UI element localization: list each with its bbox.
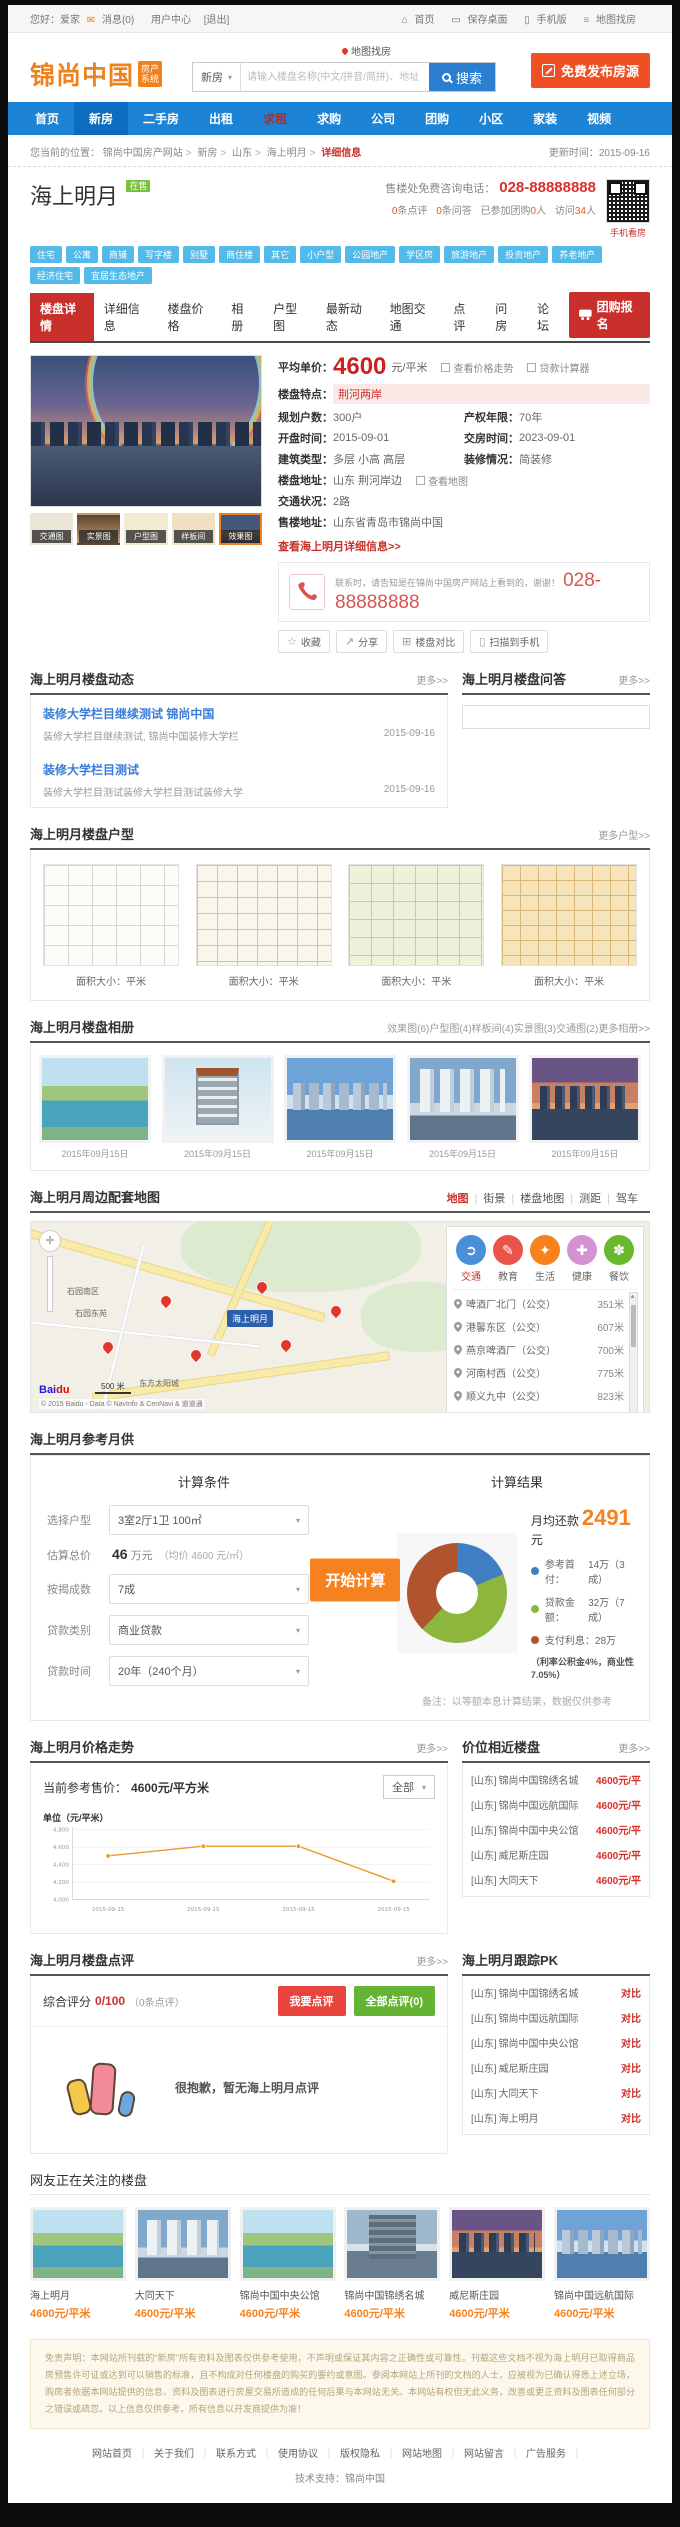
reviews-more-link[interactable]: 更多>> [416, 1953, 448, 1968]
location-icon [416, 476, 425, 485]
poi-category[interactable]: ➲ 交通 [456, 1235, 486, 1283]
compare-link[interactable]: 对比 [621, 2110, 641, 2125]
tag-pill[interactable]: 经济住宅 [30, 267, 80, 284]
compare-link[interactable]: 对比 [621, 2010, 641, 2025]
phone-icon: ▯ [524, 15, 530, 26]
pk-list: [山东] 锦尚中国锦绣名城 对比 [山东] 锦尚中国远航国际 对比 [山东] [462, 1976, 650, 2135]
legend-dot [531, 1567, 539, 1575]
album-links: 效果图(6)户型图(4)样板间(4)实景图(3)交通图(2) 更多相册>> [387, 1020, 650, 1035]
trend-filter-select[interactable]: 全部▾ [383, 1775, 435, 1799]
property-card[interactable]: 锦尚中国远航国际4600元/平米 [554, 2207, 650, 2321]
qa-input[interactable] [462, 705, 650, 729]
loan-type-select[interactable]: 商业贷款▾ [109, 1615, 309, 1645]
scan-to-phone-button[interactable]: ▯扫描到手机 [470, 630, 548, 653]
nav-item-home[interactable]: 首页 [20, 102, 74, 135]
floorplan-image [348, 864, 484, 966]
footer-link[interactable]: 版权隐私 [340, 2449, 380, 2460]
floorplan-item[interactable]: 面积大小：平米 [501, 864, 637, 988]
tab-detail[interactable]: 楼盘详情 [30, 293, 94, 341]
nav-item-newhouse[interactable]: 新房 [74, 102, 128, 135]
open-date: 2015-09-01 [333, 432, 389, 444]
baidu-logo: Baidu [39, 1384, 70, 1396]
tab-forum[interactable]: 论坛 [527, 293, 569, 341]
breadcrumb-site[interactable]: 锦尚中国房产网站 [103, 148, 183, 159]
empty-state-illustration [67, 2055, 145, 2119]
support-link[interactable]: 锦尚中国 [345, 2474, 385, 2485]
mobile-version-link[interactable]: ▯ 手机版 [524, 15, 570, 26]
qa-more-link[interactable]: 更多>> [618, 672, 650, 687]
map-pin-icon [159, 1294, 173, 1308]
album-photo[interactable]: 2015年09月15日 [39, 1055, 151, 1160]
nav-item-video[interactable]: 视频 [572, 102, 626, 135]
breadcrumb-category[interactable]: 新房 [197, 148, 217, 159]
calculate-button[interactable]: 开始计算 [310, 1559, 400, 1602]
album-category-link[interactable]: 户型图(4) [429, 1020, 471, 1035]
floorplan-image [501, 864, 637, 966]
save-desktop-link[interactable]: ▭ 保存桌面 [451, 15, 511, 26]
card-image [30, 2207, 126, 2281]
nearby-header: 价位相近楼盘 更多>> [462, 1737, 650, 1763]
nav-item-seek-rent[interactable]: 求租 [248, 102, 302, 135]
tenure-value: 70年 [519, 409, 542, 425]
map-compass-control[interactable]: ✛ [39, 1230, 61, 1252]
price-label: 平均单价： [278, 359, 333, 375]
poi-categories: ➲ 交通 ✎ 教育 ✦ 生活 [452, 1235, 638, 1290]
legend-item: 贷款金额：32万（7成） [531, 1594, 637, 1624]
floorplans-header: 海上明月楼盘户型 更多户型>> [30, 824, 650, 850]
search-button[interactable]: 搜索 [429, 63, 495, 91]
compare-link[interactable]: 对比 [621, 2085, 641, 2100]
nav-item-company[interactable]: 公司 [356, 102, 410, 135]
unit-select[interactable]: 3室2厅1卫 100㎡▾ [109, 1505, 309, 1535]
photo-image [529, 1055, 641, 1143]
album-header: 海上明月楼盘相册 效果图(6)户型图(4)样板间(4)实景图(3)交通图(2) … [30, 1017, 650, 1043]
album-category-link[interactable]: 效果图(6) [387, 1020, 429, 1035]
dynamics-list: 装修大学栏目继续测试 锦尚中国 装修大学栏目继续测试, 锦尚中国装修大学栏201… [30, 695, 448, 808]
map-search-shortcut[interactable]: 地图找房 [342, 43, 496, 58]
messages-link[interactable]: ✉ 消息(0) [87, 15, 138, 26]
legend-dot [531, 1605, 539, 1613]
title-block: 海上明月 在售 售楼处免费咨询电话：028-88888888 0条点评 0条问答… [8, 167, 672, 239]
svg-text:4,000: 4,000 [53, 1898, 69, 1904]
share-icon: ↗ [345, 635, 354, 648]
poi-list: 啤酒厂北门（公交） 351米 港馨东区（公交） 607米 燕京啤酒厂（公交） [452, 1290, 638, 1413]
term-select[interactable]: 20年（240个月）▾ [109, 1656, 309, 1686]
map-mode-measure[interactable]: 测距 [579, 1193, 601, 1205]
news-item[interactable]: 装修大学栏目继续测试 锦尚中国 装修大学栏目继续测试, 锦尚中国装修大学栏201… [31, 695, 447, 751]
category-icon: ✦ [530, 1235, 560, 1265]
groupbuy-signup-button[interactable]: 团购报名 [569, 292, 650, 338]
pin-icon [454, 1368, 462, 1378]
poi-list-item[interactable]: 顺义九中（公交） 823米 [454, 1384, 624, 1407]
poi-list-item[interactable]: 减河路口（公交） 852米 [454, 1407, 624, 1413]
property-card[interactable]: 锦尚中国中央公馆4600元/平米 [240, 2207, 336, 2321]
delivery-date: 2023-09-01 [519, 432, 575, 444]
user-center-link[interactable]: 用户中心 [151, 15, 191, 26]
view-detail-link[interactable]: 查看海上明月详细信息>> [278, 538, 401, 554]
svg-text:2015-09-15: 2015-09-15 [92, 1907, 125, 1913]
breadcrumb-current: 详细信息 [321, 148, 361, 159]
nearby-item[interactable]: [山东] 锦尚中国远航国际 4600元/平 [469, 1792, 643, 1817]
tab-floorplan[interactable]: 户型图 [263, 293, 316, 341]
album-photo[interactable]: 2015年09月15日 [284, 1055, 396, 1160]
tag-pill[interactable]: 别墅 [183, 246, 215, 263]
pk-header: 海上明月跟踪PK [462, 1950, 650, 1976]
compare-icon: ⊞ [402, 635, 411, 648]
compare-link[interactable]: 对比 [621, 2035, 641, 2050]
map-attribution: © 2015 Baidu - Data © NavInfo & CenNavi … [39, 1399, 205, 1409]
svg-text:4,400: 4,400 [53, 1863, 69, 1869]
disclaimer: 免责声明：本网站所刊载的“新房”所有资料及图表仅供参考使用，不声明或保证其内容之… [30, 2339, 650, 2429]
search-category-dropdown[interactable]: 新房▾ [193, 63, 241, 91]
nav-item-seek-buy[interactable]: 求购 [302, 102, 356, 135]
tab-reviews[interactable]: 点评 [443, 293, 485, 341]
site-footer: 网站首页关于我们联系方式使用协议版权隐私网站地图网站留言广告服务 技术支持：锦尚… [8, 2429, 672, 2503]
pk-item: [山东] 锦尚中国远航国际 对比 [469, 2005, 643, 2030]
action-row: ☆收藏 ↗分享 ⊞楼盘对比 ▯扫描到手机 [278, 630, 650, 653]
status-badge: 在售 [126, 180, 150, 192]
compare-link[interactable]: 对比 [621, 1985, 641, 2000]
logout-link[interactable]: [退出] [204, 15, 230, 26]
total-price: 46万元（均价 4600 元/㎡） [109, 1546, 249, 1563]
write-review-button[interactable]: 我要点评 [278, 1986, 346, 2016]
property-tags: 住宅公寓商铺写字楼别墅商住楼其它小户型公园地产学区房旅游地产投资地产养老地产经济… [8, 239, 672, 286]
price-trend-panel: 当前参考售价：4600元/平方米 全部▾ 单位（元/平米） 4,0004,200… [30, 1763, 448, 1934]
thumb-real-scene[interactable]: 实景图 [77, 513, 120, 545]
map-mode-map[interactable]: 地图 [447, 1193, 469, 1205]
footer-link[interactable]: 网站留言 [464, 2449, 504, 2460]
album-more-link[interactable]: 更多相册>> [598, 1020, 650, 1035]
nearby-item[interactable]: [山东] 锦尚中国锦绣名城 4600元/平 [469, 1767, 643, 1792]
card-image [240, 2207, 336, 2281]
phone-note: 联系时，请告知是在锦尚中国房产网站上看到的，谢谢！ [335, 578, 560, 588]
poi-list-item[interactable]: 啤酒厂北门（公交） 351米 [454, 1292, 624, 1315]
breadcrumb: 您当前的位置： 锦尚中国房产网站> 新房> 山东> 海上明月> 详细信息 [30, 144, 361, 159]
map-pin-icon [189, 1348, 203, 1362]
phone-box: 联系时，请告知是在锦尚中国房产网站上看到的，谢谢！ 028-88888888 [278, 562, 650, 622]
address-value: 山东 荆河岸边 [333, 472, 402, 488]
card-image [554, 2207, 650, 2281]
map-place-label: 石园东苑 [75, 1308, 107, 1319]
svg-text:4,200: 4,200 [53, 1880, 69, 1886]
logo-badge: 房产系统 [138, 61, 162, 88]
updated-time: 更新时间：2015-09-16 [549, 144, 650, 159]
hotline: 售楼处免费咨询电话：028-88888888 [385, 179, 596, 196]
thumb-traffic-map[interactable]: 交通图 [30, 513, 73, 545]
tab-map[interactable]: 地图交通 [380, 293, 444, 341]
category-icon: ✚ [567, 1235, 597, 1265]
legend-item: 支付利息：28万 [531, 1632, 637, 1647]
traffic-value: 2路 [333, 493, 350, 509]
rate-note: （利率公积金4%，商业性7.05%） [531, 1655, 637, 1681]
breadcrumb-row: 您当前的位置： 锦尚中国房产网站> 新房> 山东> 海上明月> 详细信息 更新时… [8, 135, 672, 167]
nav-item-groupbuy[interactable]: 团购 [410, 102, 464, 135]
album-category-link[interactable]: 样板间(4) [472, 1020, 514, 1035]
floorplan-item[interactable]: 面积大小：平米 [348, 864, 484, 988]
album-row: 2015年09月15日 2015年09月15日 2015年09月15日 2015… [30, 1043, 650, 1171]
category-icon: ✽ [604, 1235, 634, 1265]
compare-button[interactable]: ⊞楼盘对比 [393, 630, 464, 653]
all-reviews-button[interactable]: 全部点评(0) [354, 1986, 435, 2016]
footer-link[interactable]: 网站地图 [402, 2449, 442, 2460]
map-scale: 500 米 [95, 1381, 131, 1394]
card-image [344, 2207, 440, 2281]
share-button[interactable]: ↗分享 [336, 630, 387, 653]
current-price: 当前参考售价：4600元/平方米 [43, 1779, 209, 1796]
category-icon: ➲ [456, 1235, 486, 1265]
monthly-payment: 月均还款2491元 [531, 1505, 637, 1548]
building-type: 多层 小高 高层 [333, 451, 405, 467]
mail-icon: ✉ [87, 15, 95, 26]
greeting-text: 您好：爱家 [30, 15, 80, 26]
svg-text:4,800: 4,800 [53, 1828, 69, 1834]
property-card[interactable]: 海上明月4600元/平米 [30, 2207, 126, 2321]
footer-link[interactable]: 广告服务 [526, 2449, 566, 2460]
floorplan-image [196, 864, 332, 966]
album-photo[interactable]: 2015年09月15日 [407, 1055, 519, 1160]
nearby-item[interactable]: [山东] 大同天下 4600元/平 [469, 1867, 643, 1892]
loan-calculator-link[interactable]: 贷款计算器 [527, 360, 589, 375]
property-card[interactable]: 威尼斯庄园4600元/平米 [449, 2207, 545, 2321]
floorplan-item[interactable]: 面积大小：平米 [196, 864, 332, 988]
site-header: 锦尚中国 房产系统 地图找房 新房▾ 搜索 免费发布房源 [8, 33, 672, 102]
chevron-down-icon: ▾ [296, 1585, 300, 1594]
tag-pill[interactable]: 写字楼 [138, 246, 179, 263]
map-poi-panel: ➲ 交通 ✎ 教育 ✦ 生活 [446, 1226, 644, 1413]
map-canvas[interactable]: 石园南区 石园东苑 东方太阳城 海上明月 ✛ Baidu 500 米 © 201… [30, 1221, 650, 1413]
album-category-link[interactable]: 实景图(3) [514, 1020, 556, 1035]
album-photo[interactable]: 2015年09月15日 [529, 1055, 641, 1160]
sales-phone-number: 028-88888888 [335, 570, 601, 613]
search-box: 新房▾ 搜索 [192, 62, 496, 92]
mortgage-calculator: 计算条件 选择户型 3室2厅1卫 100㎡▾ 估算总价 46万元（均价 4600… [30, 1455, 650, 1721]
map-pin-icon [329, 1304, 343, 1318]
nav-item-decor[interactable]: 家装 [518, 102, 572, 135]
poi-category[interactable]: ✦ 生活 [530, 1235, 560, 1283]
view-map-link[interactable]: 查看地图 [416, 473, 468, 488]
chevron-down-icon: ▾ [422, 1783, 426, 1792]
footer-links: 网站首页关于我们联系方式使用协议版权隐私网站地图网站留言广告服务 [8, 2445, 672, 2460]
empty-reviews-text: 很抱歉，暂无海上明月点评 [175, 2079, 319, 2096]
pk-item: [山东] 锦尚中国锦绣名城 对比 [469, 1980, 643, 2005]
tag-pill[interactable]: 养老地产 [552, 246, 602, 263]
chevron-down-icon: ▾ [296, 1626, 300, 1635]
tab-info[interactable]: 详细信息 [94, 293, 158, 341]
favorite-button[interactable]: ☆收藏 [278, 630, 330, 653]
nearby-list: [山东] 锦尚中国锦绣名城 4600元/平 [山东] 锦尚中国远航国际 4600… [462, 1763, 650, 1897]
nav-item-community[interactable]: 小区 [464, 102, 518, 135]
property-map-pin-label[interactable]: 海上明月 [227, 1310, 273, 1327]
reviews-header: 海上明月楼盘点评 更多>> [30, 1950, 448, 1976]
tag-pill[interactable]: 学区房 [399, 246, 440, 263]
album-category-link[interactable]: 交通图(2) [556, 1020, 598, 1035]
map-place-label: 东方太阳城 [139, 1378, 179, 1389]
bus-icon [579, 309, 592, 321]
map-pin-icon [341, 46, 349, 54]
search-icon [442, 73, 451, 82]
svg-text:2015-09-15: 2015-09-15 [282, 1907, 315, 1913]
map-header: 海上明月周边配套地图 地图 街景 楼盘地图 测距 驾车 [30, 1187, 650, 1213]
map-pin-icon [101, 1340, 115, 1354]
watching-cards: 海上明月4600元/平米 大同天下4600元/平米 锦尚中国中央公馆4600元/… [30, 2207, 650, 2321]
chart-icon [441, 363, 450, 372]
qr-area: 手机看房 [606, 179, 650, 239]
map-mode-street[interactable]: 街景 [483, 1193, 505, 1205]
tab-album[interactable]: 相册 [221, 293, 263, 341]
feature-value: 荆河两岸 [333, 384, 650, 404]
main-nav: 首页 新房 二手房 出租 求租 求购 公司 团购 小区 家装 视频 [8, 102, 672, 135]
sales-address: 山东省青岛市锦尚中国 [333, 514, 443, 530]
tag-pill[interactable]: 旅游地产 [444, 246, 494, 263]
thumb-floorplan[interactable]: 户型图 [124, 513, 167, 545]
watching-header: 网友正在关注的楼盘 [30, 2170, 650, 2195]
nearby-more-link[interactable]: 更多>> [618, 1740, 650, 1755]
card-image [449, 2207, 545, 2281]
search-area: 地图找房 新房▾ 搜索 [192, 43, 496, 92]
footer-link[interactable]: 关于我们 [154, 2449, 194, 2460]
thumb-render[interactable]: 效果图 [219, 513, 262, 545]
mortgage-donut-chart [407, 1543, 507, 1643]
qr-caption: 手机看房 [606, 226, 650, 239]
menu-icon: ≡ [583, 15, 589, 26]
price-trend-chart: 4,0004,2004,4004,6004,8002015-09-152015-… [43, 1824, 435, 1922]
footer-link[interactable]: 联系方式 [216, 2449, 256, 2460]
photo-image [407, 1055, 519, 1143]
home-link[interactable]: ⌂ 首页 [402, 15, 439, 26]
star-icon: ☆ [287, 635, 297, 648]
photo-image [39, 1055, 151, 1143]
qa-header: 海上明月楼盘问答 更多>> [462, 669, 650, 695]
footer-link[interactable]: 使用协议 [278, 2449, 318, 2460]
price-trend-link[interactable]: 查看价格走势 [441, 360, 513, 375]
news-item[interactable]: 装修大学栏目测试 装修大学栏目测试装修大学栏目测试装修大学2015-09-16 [31, 751, 447, 807]
pk-item: [山东] 大同天下 对比 [469, 2080, 643, 2105]
ratio-select[interactable]: 7成▾ [109, 1574, 309, 1604]
dynamics-more-link[interactable]: 更多>> [416, 672, 448, 687]
calculator-header: 海上明月参考月供 [30, 1429, 650, 1455]
map-place-label: 石园南区 [67, 1286, 99, 1297]
tab-ask[interactable]: 问房 [485, 293, 527, 341]
category-icon: ✎ [493, 1235, 523, 1265]
property-stats: 0条点评 0条问答 已参加团购0人 访问34人 [385, 202, 596, 217]
poi-list-item[interactable]: 燕京啤酒厂（公交） 700米 [454, 1338, 624, 1361]
trend-more-link[interactable]: 更多>> [416, 1740, 448, 1755]
pin-icon [454, 1299, 462, 1309]
price-unit: 元/平米 [391, 359, 427, 375]
tag-pill[interactable]: 商住楼 [219, 246, 260, 263]
tab-news[interactable]: 最新动态 [316, 293, 380, 341]
pk-item: [山东] 海上明月 对比 [469, 2105, 643, 2130]
property-card[interactable]: 大同天下4600元/平米 [135, 2207, 231, 2321]
households-value: 300户 [333, 409, 362, 425]
property-summary: 交通图 实景图 户型图 样板间 效果图 平均单价： 4600 元/平米 查看价格… [30, 355, 650, 653]
poi-category[interactable]: ✚ 健康 [567, 1235, 597, 1283]
nav-item-resale[interactable]: 二手房 [128, 102, 194, 135]
thumb-showroom[interactable]: 样板间 [172, 513, 215, 545]
logo-text: 锦尚中国 [30, 56, 134, 92]
page: 您好：爱家 ✉ 消息(0) 用户中心 [退出] ⌂ 首页 ▭ 保存桌面 ▯ 手机… [8, 5, 672, 2503]
calculator-note: 备注：以等额本息计算结果，数据仅供参考 [397, 1693, 637, 1708]
nearby-item[interactable]: [山东] 威尼斯庄园 4600元/平 [469, 1842, 643, 1867]
search-input[interactable] [241, 63, 429, 91]
legend-item: 参考首付：14万（3成） [531, 1556, 637, 1586]
tag-pill[interactable]: 商铺 [102, 246, 134, 263]
pk-item: [山东] 锦尚中国中央公馆 对比 [469, 2030, 643, 2055]
floorplans-more-link[interactable]: 更多户型>> [598, 827, 650, 842]
map-search-link[interactable]: ≡ 地图找房 [583, 15, 640, 26]
chevron-down-icon: ▾ [296, 1516, 300, 1525]
album-photo[interactable]: 2015年09月15日 [162, 1055, 274, 1160]
qrcode-icon: ▯ [479, 635, 485, 648]
floorplan-image [43, 864, 179, 966]
svg-text:2015-09-15: 2015-09-15 [377, 1907, 410, 1913]
map-pin-icon [279, 1338, 293, 1352]
tag-pill[interactable]: 投资地产 [498, 246, 548, 263]
card-image [135, 2207, 231, 2281]
property-card[interactable]: 锦尚中国锦绣名城4600元/平米 [344, 2207, 440, 2321]
tag-pill[interactable]: 小户型 [300, 246, 341, 263]
price-value: 4600 [333, 355, 386, 379]
trend-header: 海上明月价格走势 更多>> [30, 1737, 448, 1763]
tag-pill[interactable]: 住宅 [30, 246, 62, 263]
desktop-icon: ▭ [451, 15, 460, 26]
poi-category[interactable]: ✽ 餐饮 [604, 1235, 634, 1283]
map-mode-links: 地图 街景 楼盘地图 测距 驾车 [447, 1190, 650, 1206]
nearby-item[interactable]: [山东] 锦尚中国中央公馆 4600元/平 [469, 1817, 643, 1842]
chevron-down-icon: ▾ [228, 73, 232, 82]
breadcrumb-property[interactable]: 海上明月 [267, 148, 307, 159]
breadcrumb-region[interactable]: 山东 [232, 148, 252, 159]
telephone-icon [289, 574, 325, 610]
poi-category[interactable]: ✎ 教育 [493, 1235, 523, 1283]
y-axis-label: 单位（元/平米） [43, 1811, 435, 1824]
detail-tabs: 楼盘详情 详细信息 楼盘价格 相册 户型图 最新动态 地图交通 点评 问房 论坛… [30, 292, 650, 343]
page-title: 海上明月 [30, 184, 118, 209]
map-mode-property[interactable]: 楼盘地图 [520, 1193, 564, 1205]
legend-dot [531, 1636, 539, 1644]
tab-price[interactable]: 楼盘价格 [157, 293, 221, 341]
tag-pill[interactable]: 其它 [264, 246, 296, 263]
property-main-photo[interactable] [30, 355, 262, 507]
compare-link[interactable]: 对比 [621, 2060, 641, 2075]
poi-list-item[interactable]: 港馨东区（公交） 607米 [454, 1315, 624, 1338]
map-zoom-control[interactable] [47, 1256, 53, 1312]
review-score: 0/100 [95, 1994, 125, 2008]
pin-icon [454, 1391, 462, 1401]
dynamics-header: 海上明月楼盘动态 更多>> [30, 669, 448, 695]
tag-pill[interactable]: 公寓 [66, 246, 98, 263]
map-mode-drive[interactable]: 驾车 [616, 1193, 638, 1205]
scrollbar[interactable]: ▲▼ [629, 1292, 638, 1413]
poi-list-item[interactable]: 河南村西（公交） 775米 [454, 1361, 624, 1384]
publish-listing-button[interactable]: 免费发布房源 [531, 53, 650, 88]
qr-code [606, 179, 650, 223]
nav-item-rent[interactable]: 出租 [194, 102, 248, 135]
floorplan-item[interactable]: 面积大小：平米 [43, 864, 179, 988]
pin-icon [454, 1322, 462, 1332]
photo-image [284, 1055, 396, 1143]
reviews-panel: 综合评分 0/100 （0条点评） 我要点评 全部点评(0) 很抱歉，暂无海上明… [30, 1976, 448, 2154]
svg-text:2015-09-15: 2015-09-15 [187, 1907, 220, 1913]
site-logo[interactable]: 锦尚中国 房产系统 [30, 56, 162, 92]
pin-icon [454, 1345, 462, 1355]
tag-pill[interactable]: 宜居生态地产 [84, 267, 152, 284]
chevron-down-icon: ▾ [296, 1667, 300, 1676]
footer-link[interactable]: 网站首页 [92, 2449, 132, 2460]
tag-pill[interactable]: 公园地产 [345, 246, 395, 263]
pk-item: [山东] 威尼斯庄园 对比 [469, 2055, 643, 2080]
photo-thumbnails: 交通图 实景图 户型图 样板间 效果图 [30, 513, 262, 545]
